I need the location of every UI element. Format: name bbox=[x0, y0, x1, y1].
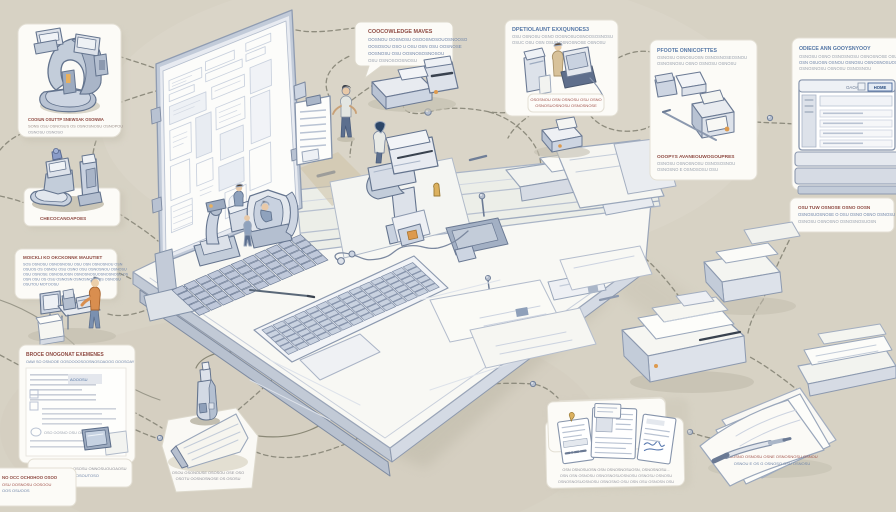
svg-text:OSUTOU MOTOOSU: OSUTOU MOTOOSU bbox=[23, 283, 59, 287]
svg-text:OSOSNOU OSN OSNOSU OSU OSNO: OSOSNOU OSN OSNOSU OSU OSNO bbox=[530, 97, 601, 102]
svg-text:OOS OSUOOS: OOS OSUOOS bbox=[2, 488, 30, 493]
svg-text:OSU OOSNOSU OOSOOU: OSU OOSNOSU OOSOOU bbox=[2, 482, 51, 487]
svg-text:CHECOCANOAPOES: CHECOCANOAPOES bbox=[40, 216, 86, 221]
svg-text:OSN OSU OS OSU OSNOSN OSNOSNOS: OSN OSU OS OSU OSNOSN OSNOSNOSU OS OSNOS… bbox=[23, 278, 121, 282]
svg-text:OSOTU OOSNOSNOSE OS OSOSU: OSOTU OOSNOSNOSE OS OSOSU bbox=[176, 476, 241, 481]
svg-text:OSNOSNOSU OSNOSU OSNOSNOU: OSNOSNOSU OSNOSU OSNOSNOU bbox=[799, 66, 871, 71]
svg-text:OSN OSN OSNOSU OSNOSNOSUOSNOSU: OSN OSN OSNOSU OSNOSNOSUOSNOSU OSNOSU OS… bbox=[560, 474, 672, 478]
svg-text:OOSOSOU OSO U OSU OSN OSU OOSN: OOSOSOU OSO U OSU OSN OSU OOSNOSE bbox=[368, 44, 462, 49]
svg-text:OSU OSNOSOOSNOSU: OSU OSNOSOOSNOSU bbox=[368, 58, 417, 63]
svg-text:DPETIOLAUNT EXXQUNOES3: DPETIOLAUNT EXXQUNOES3 bbox=[512, 27, 589, 33]
svg-text:OSNOU E OS G OSNOSO OSU OSNOS: OSNOU E OS G OSNOSO OSU OSNOSU bbox=[734, 461, 811, 466]
svg-text:SONS OSU OSNOSUS OS OSNOSNOSU: SONS OSU OSNOSUS OS OSNOSNOSU OSNOPOU bbox=[28, 124, 123, 129]
svg-text:OSNOSU OSNOSO: OSNOSU OSNOSO bbox=[28, 130, 63, 135]
svg-text:OAW SO OSNOOE OOSOOOOSOOSNOSOA: OAW SO OSNOOE OOSOOOOSOOSNOSOAOOG OOOSOA… bbox=[26, 360, 135, 364]
svg-text:OSNOSUOSNOSE O OSU OSNO OSNO O: OSNOSUOSNOSE O OSU OSNO OSNO OSNOSU bbox=[798, 212, 895, 217]
svg-text:OSNOSU OSNOSUOSN OSNOSNOSEOSNO: OSNOSU OSNOSUOSN OSNOSNOSEOSNOU bbox=[657, 55, 747, 60]
svg-text:COOCOWLEDGE MAVES: COOCOWLEDGE MAVES bbox=[368, 29, 433, 35]
svg-text:OSU TUW OSNOSE OSNO OOSN: OSU TUW OSNOSE OSNO OOSN bbox=[798, 205, 871, 210]
svg-text:OSNOSU OSNOSNOSU OSNOSOSNOU: OSNOSU OSNOSNOSU OSNOSOSNOU bbox=[657, 161, 735, 166]
svg-text:OOSNOSU OSU OOSNOSOSNOSOU: OOSNOSU OSU OOSNOSOSNOSOU bbox=[368, 51, 444, 56]
svg-text:HOME: HOME bbox=[874, 85, 887, 90]
svg-text:OSU OSNOSU OSNO OOSNOSUOSNOOSO: OSU OSNOSU OSNO OOSNOSUOSNOOSOSNOSU bbox=[512, 34, 613, 39]
svg-text:OSNOSU OSNO OSNOSNOSU OSNOSNOS: OSNOSU OSNO OSNOSNOSU OSNOSNOSE OSU bbox=[799, 54, 896, 59]
svg-text:ODIECE ANN GOOYSNYOOY: ODIECE ANN GOOYSNYOOY bbox=[799, 46, 871, 52]
svg-text:OSNOSUOSNOSU OSNOSNOSE: OSNOSUOSNOSU OSNOSNOSE bbox=[535, 103, 597, 108]
svg-text:OOSNOU OOSNOSU OSOOSNOSOUOSNOO: OOSNOU OOSNOSU OSOOSNOSOUOSNOOSO bbox=[368, 37, 468, 42]
svg-text:OSNOSNOSUOSNOSU OSNOSNO OSU OS: OSNOSNOSUOSNOSU OSNOSNO OSU OSN OSU OSNO… bbox=[558, 480, 675, 484]
svg-text:OSN OSUOSN OSNOU OSNOSU OSNOSN: OSN OSUOSN OSNOU OSNOSU OSNOSNOSUOSN bbox=[799, 60, 896, 65]
svg-text:BROCE ONOGONAT EXEMENES: BROCE ONOGONAT EXEMENES bbox=[26, 352, 104, 358]
svg-text:OOOPYS AVANEOUWOGOUPRES: OOOPYS AVANEOUWOGOUPRES bbox=[657, 154, 735, 160]
svg-text:OAOA: OAOA bbox=[846, 85, 859, 90]
svg-text:AOOOSU: AOOOSU bbox=[70, 377, 88, 382]
svg-text:COOIUN OSUTTP SNEWSAK OSONWA: COOIUN OSUTTP SNEWSAK OSONWA bbox=[28, 117, 104, 122]
svg-text:SOS OSNOSU OSNOSNOSU OSU OSN O: SOS OSNOSU OSNOSNOSU OSU OSN OSNOSNOU OS… bbox=[23, 263, 123, 267]
svg-text:OSNOSNOSU OSNO OSNOSU OSNOSU: OSNOSNOSU OSNO OSNOSU OSNOSU bbox=[657, 61, 736, 66]
svg-text:OSUOS OS OSNOU OSU OSNO OSU OS: OSUOS OS OSNOU OSU OSNO OSU OSNOSNOU OSN… bbox=[23, 268, 127, 272]
svg-text:NO OCC OCHOHOO OSOO: NO OCC OCHOHOO OSOO bbox=[2, 475, 58, 480]
svg-text:OSNOSU OSNOSNO OSNOSNOSUOSN: OSNOSU OSNOSNO OSNOSNOSUOSN bbox=[798, 219, 876, 224]
svg-text:OSOSNO OSNOSU OSNE OSNOSNOSU O: OSOSNO OSNOSU OSNE OSNOSNOSU OSNOU bbox=[726, 454, 817, 459]
svg-text:OSNOSNO E OSNOSOSU OSU: OSNOSNO E OSNOSOSU OSU bbox=[657, 167, 718, 172]
svg-text:OSU OSNOSE OSNOSUOSN OSNOSNOSU: OSU OSNOSE OSNOSUOSN OSNOSNOSUOSNOSNOSU … bbox=[23, 273, 129, 277]
svg-text:MOICKLI KO OKCKONNK MAUUTIET: MOICKLI KO OKCKONNK MAUUTIET bbox=[23, 255, 102, 260]
svg-text:OSOU OSONOUSE OSOSOU OSE OSO: OSOU OSONOUSE OSOSOU OSE OSO bbox=[172, 470, 244, 475]
svg-text:OSN OSNOSUOSN OSN OSNOSNOSUOSN: OSN OSNOSUOSN OSN OSNOSNOSUOSN, OSNOSNOS… bbox=[562, 468, 669, 472]
svg-text:PFOOTE ONNICOFTTES: PFOOTE ONNICOFTTES bbox=[657, 48, 717, 54]
